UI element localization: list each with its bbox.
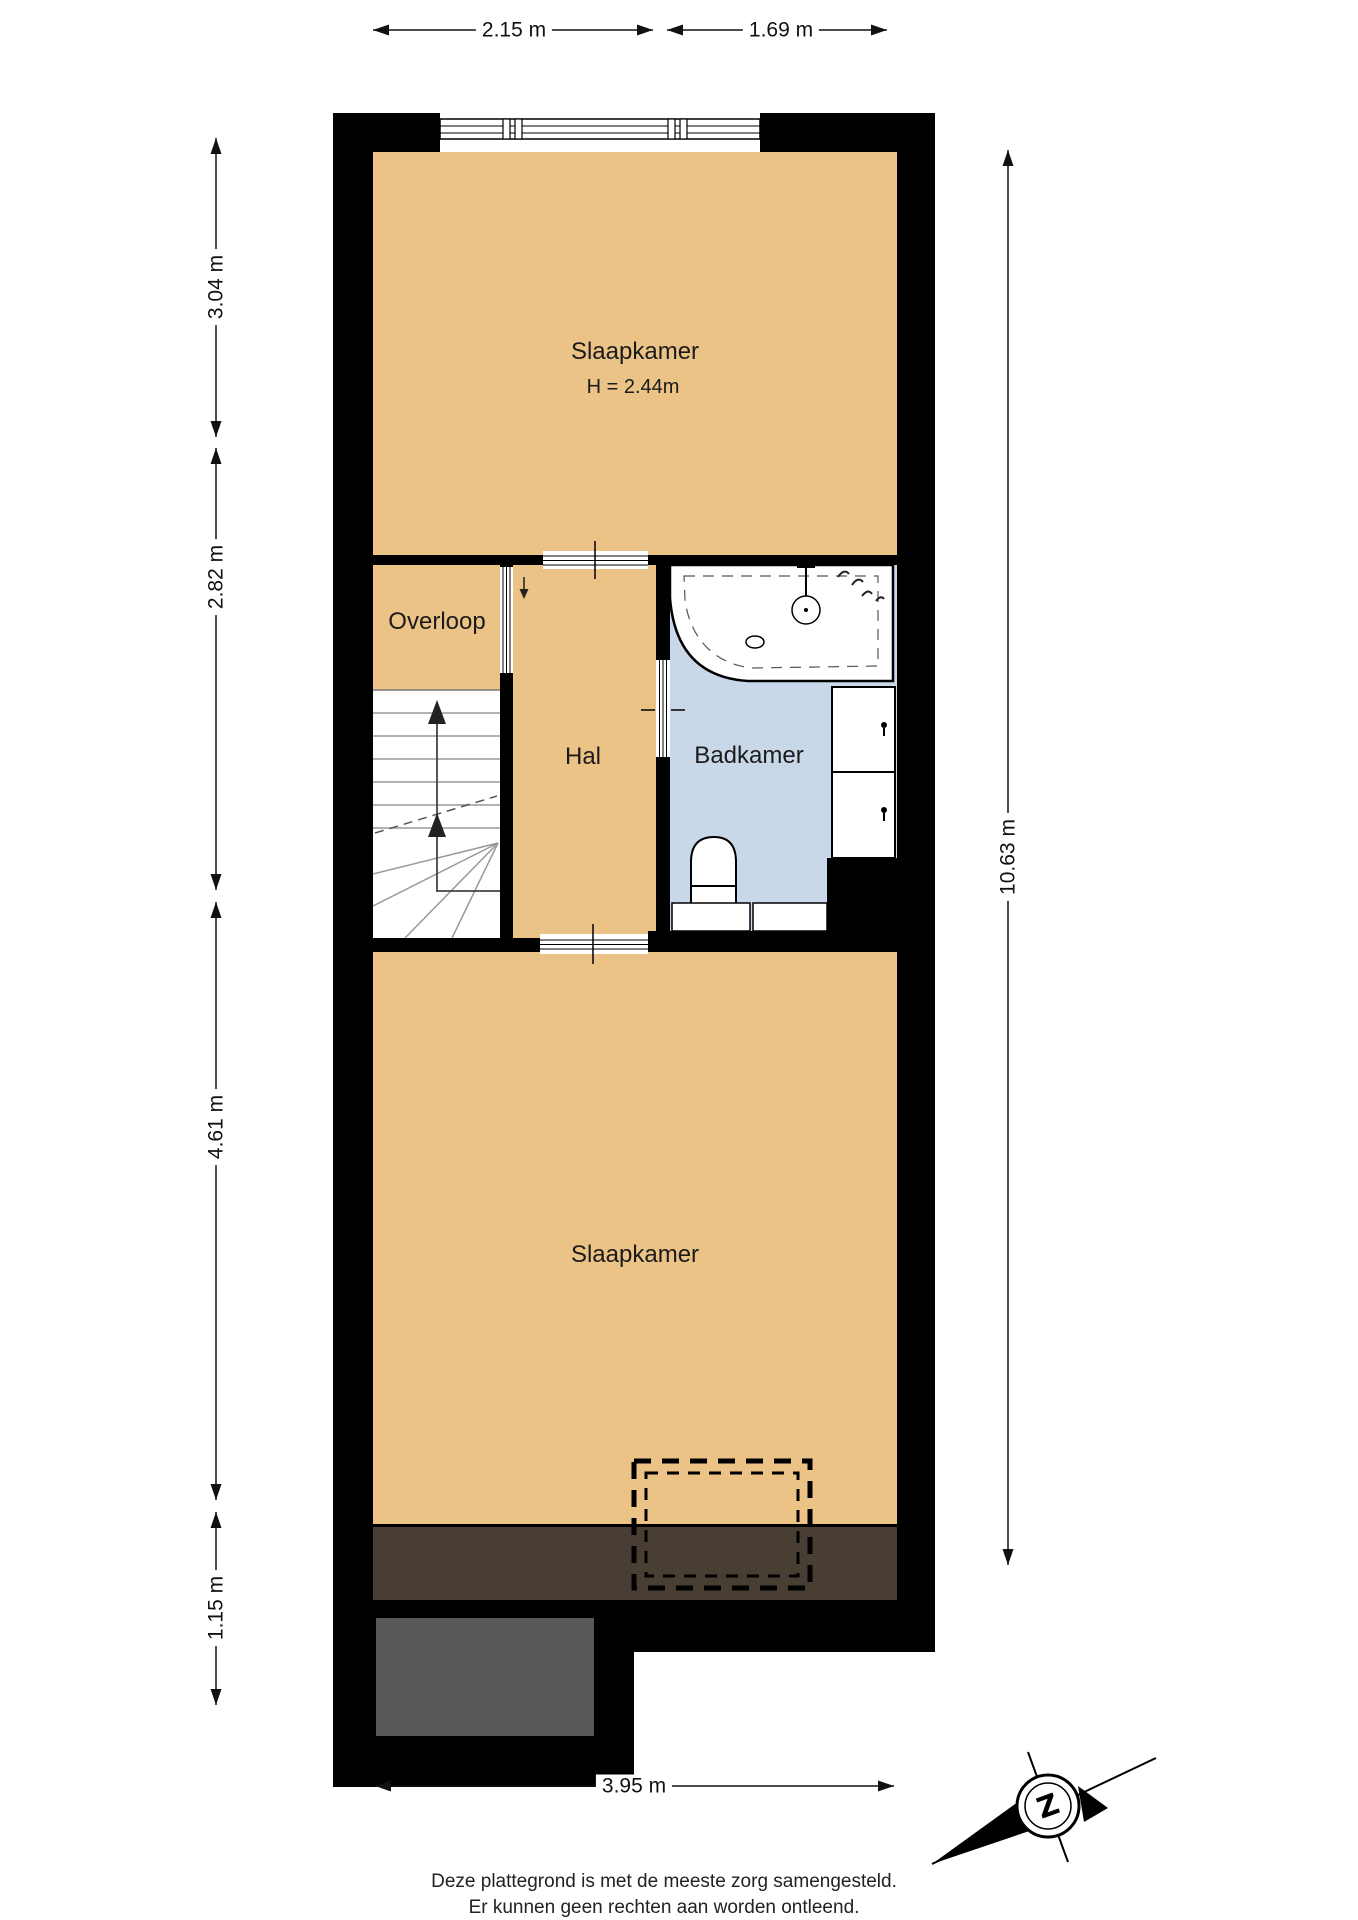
disclaimer-line-1: Deze plattegrond is met de meeste zorg s… <box>431 1871 897 1893</box>
bathtub <box>670 565 893 681</box>
dim-left-annex: 1.15 m <box>205 1570 228 1646</box>
bathroom-counter <box>672 903 827 931</box>
room-label-hall: Hal <box>565 745 601 769</box>
annex-roof-area <box>376 1618 594 1736</box>
toilet-icon <box>691 837 736 904</box>
window-north <box>440 113 760 152</box>
dim-left-bottom: 4.61 m <box>205 1089 228 1165</box>
south-wall-band <box>634 1600 935 1652</box>
bath-drain-icon <box>746 636 764 648</box>
dim-left-middle: 2.82 m <box>205 539 228 615</box>
room-label-bedroom-bottom: Slaapkamer <box>571 1243 699 1267</box>
room-label-landing: Overloop <box>388 610 485 634</box>
bathroom-cabinets <box>832 687 895 858</box>
floorplan-page: Z Slaapkamer H = 2.44m Overloop Hal Badk… <box>0 0 1358 1920</box>
disclaimer-line-2: Er kunnen geen rechten aan worden ontlee… <box>469 1897 860 1919</box>
dim-top-width-right: 1.69 m <box>743 19 819 42</box>
room-height-note: H = 2.44m <box>587 377 680 397</box>
staircase <box>373 690 500 938</box>
dim-left-top: 3.04 m <box>205 249 228 325</box>
room-label-bathroom: Badkamer <box>694 744 803 768</box>
floor-bedroom-bottom <box>373 952 897 1527</box>
dim-right-total: 10.63 m <box>997 813 1020 901</box>
door-landing-hall <box>500 567 513 673</box>
roof-zones <box>333 1524 935 1787</box>
wall-west <box>333 113 373 1787</box>
dim-bottom-width: 3.95 m <box>596 1775 672 1798</box>
room-label-bedroom-top: Slaapkamer <box>571 340 699 364</box>
compass-north-icon: Z <box>932 1752 1156 1864</box>
dim-top-width-left: 2.15 m <box>476 19 552 42</box>
wall-east <box>897 113 935 1652</box>
wall-bathroom-south <box>648 931 897 952</box>
